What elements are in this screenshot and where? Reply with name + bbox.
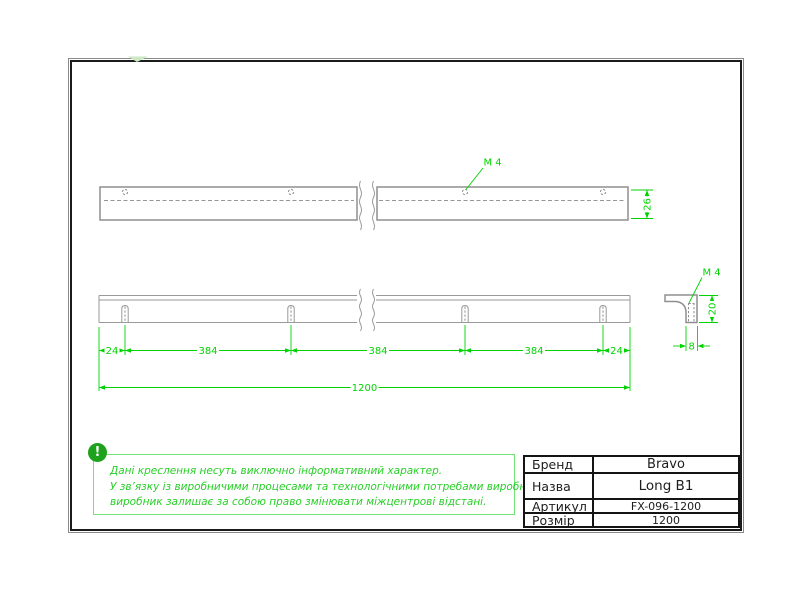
title-block-row-name: Назва Long B1 [525, 472, 738, 498]
dim-value-8: 8 [689, 342, 695, 353]
dim-value-384-3: 384 [524, 346, 543, 357]
dim-value-24-right: 24 [610, 346, 623, 357]
drawing-sheet: M 4 26 [0, 0, 800, 600]
extension-lines [99, 325, 630, 391]
top-view: M 4 26 [100, 158, 654, 231]
break-lines [359, 181, 374, 230]
name-value: Long B1 [594, 478, 738, 494]
title-block: Бренд Bravo Назва Long B1 Артикул FX-096… [523, 455, 740, 528]
note-line: Дані креслення несуть виключно інформати… [110, 464, 514, 480]
total-length-dimension: 1200 [99, 382, 630, 394]
note-line: У зв’язку із виробничими процесами та те… [110, 480, 514, 496]
brand-value: Bravo [594, 457, 738, 472]
dim-value-24-left: 24 [106, 346, 119, 357]
dimension-20: 20 [699, 296, 719, 323]
side-view-bar [99, 296, 630, 323]
name-label: Назва [525, 474, 594, 498]
spacing-dimensions: 24 384 384 384 24 [99, 325, 630, 391]
size-value: 1200 [594, 514, 738, 527]
dim-value-20: 20 [708, 303, 719, 316]
dim-value-384-2: 384 [368, 346, 387, 357]
note-box: Дані креслення несуть виключно інформати… [93, 454, 515, 515]
break-lines [359, 289, 374, 331]
title-block-row-brand: Бренд Bravo [525, 457, 738, 472]
sku-label: Артикул [525, 500, 594, 512]
thread-label: M 4 [703, 268, 721, 279]
green-artifact [128, 57, 148, 63]
exclamation-icon: ! [88, 443, 107, 462]
dimension-26: 26 [631, 190, 654, 219]
dimension-8: 8 [673, 326, 710, 353]
thread-label: M 4 [484, 158, 502, 169]
title-block-row-sku: Артикул FX-096-1200 [525, 498, 738, 512]
dim-value-26: 26 [643, 198, 654, 211]
brand-label: Бренд [525, 457, 594, 472]
mounting-pegs [122, 306, 606, 323]
dim-value-384-1: 384 [198, 346, 217, 357]
end-view-profile [665, 295, 697, 323]
top-view-bar-right [377, 187, 628, 220]
sku-value: FX-096-1200 [594, 500, 738, 513]
title-block-row-size: Розмір 1200 [525, 512, 738, 526]
end-view: M 4 20 8 [665, 268, 721, 353]
note-line: виробник залишає за собою право змінюват… [110, 495, 514, 511]
top-view-bar-left [100, 187, 357, 220]
size-label: Розмір [525, 514, 594, 526]
dim-value-1200: 1200 [352, 383, 377, 394]
side-view [99, 289, 630, 331]
